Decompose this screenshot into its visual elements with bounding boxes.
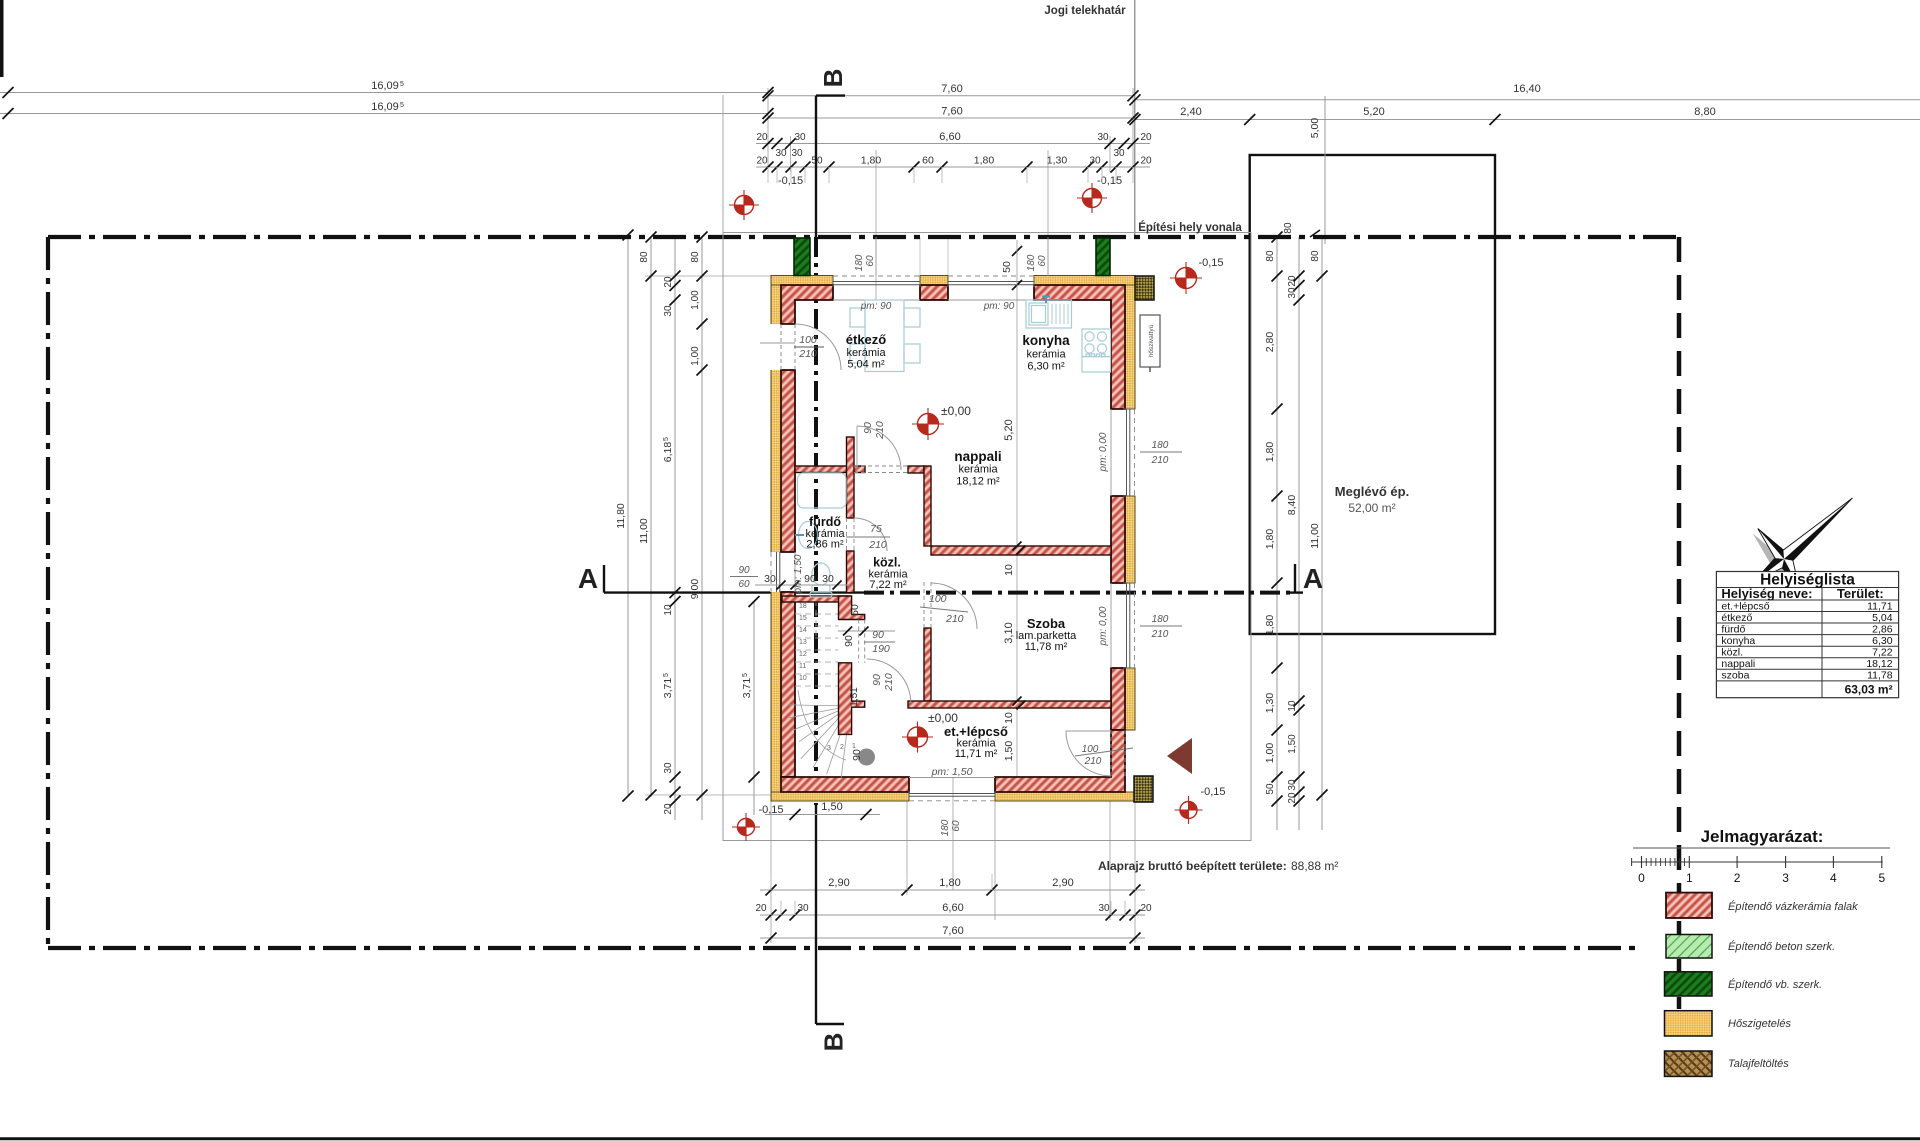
svg-text:3,71: 3,71 [741,678,753,699]
svg-text:2,40: 2,40 [1180,106,1201,118]
svg-text:180: 180 [1152,614,1169,625]
svg-text:100: 100 [799,334,817,346]
svg-text:50: 50 [849,604,861,616]
svg-text:30: 30 [791,148,803,159]
svg-text:90: 90 [804,573,816,585]
svg-text:88,88 m²: 88,88 m² [1291,859,1338,873]
svg-text:5: 5 [400,102,404,109]
svg-text:5: 5 [1878,871,1885,885]
svg-text:B: B [818,69,848,88]
svg-text:1,51: 1,51 [849,687,860,707]
svg-text:8,40: 8,40 [1286,495,1298,516]
svg-text:30: 30 [797,903,809,914]
svg-text:5,04: 5,04 [1872,612,1893,624]
svg-text:et.+lépcső: et.+lépcső [1721,600,1769,612]
svg-text:Helyiség neve:: Helyiség neve: [1721,586,1812,601]
svg-text:10: 10 [799,675,807,682]
svg-text:30: 30 [663,762,674,774]
svg-text:fürdő: fürdő [1721,623,1745,635]
svg-text:30: 30 [1287,779,1298,791]
svg-text:1,30: 1,30 [1047,155,1068,167]
svg-text:90: 90 [872,629,884,641]
svg-text:30: 30 [794,132,806,143]
svg-text:pm: 0,00: pm: 0,00 [1098,432,1109,472]
svg-text:80: 80 [1283,222,1294,234]
svg-text:6,30: 6,30 [1872,635,1893,647]
svg-text:0: 0 [1638,871,1645,885]
svg-text:hőszivattyú: hőszivattyú [1148,324,1155,357]
svg-text:1,80: 1,80 [939,877,960,889]
svg-text:90: 90 [843,635,855,647]
svg-text:1,30: 1,30 [1264,693,1276,714]
svg-text:Jelmagyarázat:: Jelmagyarázat: [1701,827,1824,846]
svg-text:5,00: 5,00 [1309,118,1321,139]
svg-text:20: 20 [663,276,674,288]
svg-text:18,12 m²: 18,12 m² [956,476,1000,488]
svg-text:6,60: 6,60 [939,131,960,143]
svg-text:3,10: 3,10 [1003,622,1015,643]
svg-text:1,50: 1,50 [1003,741,1015,762]
svg-text:90: 90 [862,422,874,434]
svg-text:10: 10 [1003,564,1015,576]
svg-text:9,00: 9,00 [689,579,701,600]
svg-text:1,80: 1,80 [1264,442,1276,463]
svg-text:20: 20 [663,803,674,815]
svg-text:20: 20 [1140,156,1152,167]
svg-text:±0,00: ±0,00 [941,404,971,418]
svg-text:80: 80 [1310,250,1321,262]
svg-text:nappali: nappali [1721,658,1755,670]
svg-text:180: 180 [1026,254,1037,271]
svg-text:11,71 m²: 11,71 m² [955,748,998,760]
svg-text:±0,00: ±0,00 [928,711,958,725]
svg-text:30: 30 [1089,156,1101,167]
svg-text:210: 210 [874,421,886,440]
svg-text:75: 75 [870,523,882,535]
svg-text:1,80: 1,80 [1264,529,1276,550]
svg-text:210: 210 [883,673,895,692]
svg-text:60: 60 [865,255,876,267]
svg-text:Talajfeltöltés: Talajfeltöltés [1728,1058,1789,1070]
svg-text:1: 1 [852,743,856,750]
svg-text:Építendő beton szerk.: Építendő beton szerk. [1728,940,1835,953]
svg-text:6,18: 6,18 [662,442,674,463]
svg-text:pm: 0,00: pm: 0,00 [1098,606,1109,646]
svg-text:13: 13 [799,639,807,646]
svg-text:20: 20 [1140,903,1152,914]
svg-text:60: 60 [922,155,934,167]
svg-text:11,00: 11,00 [638,518,650,544]
svg-text:étkező: étkező [1721,612,1752,624]
svg-text:2,86 m²: 2,86 m² [806,539,844,551]
svg-text:30: 30 [663,305,674,317]
svg-text:12: 12 [799,651,807,658]
svg-text:6,30 m²: 6,30 m² [1027,361,1065,373]
svg-text:2: 2 [1734,871,1741,885]
svg-text:pm: 1,50: pm: 1,50 [931,766,973,778]
svg-text:60: 60 [951,820,962,832]
svg-text:63,03 m²: 63,03 m² [1845,683,1893,697]
svg-text:210: 210 [1084,756,1102,767]
svg-text:11,71: 11,71 [1867,600,1893,612]
svg-text:190: 190 [872,643,890,655]
svg-text:1,80: 1,80 [861,155,882,167]
svg-text:20: 20 [1287,275,1298,287]
svg-text:210: 210 [798,348,817,360]
svg-text:7,60: 7,60 [942,925,963,937]
svg-text:2,86: 2,86 [1872,623,1893,635]
svg-text:180: 180 [940,819,951,836]
svg-text:pm: 90: pm: 90 [860,301,892,312]
svg-text:180: 180 [854,254,865,271]
svg-text:3,71: 3,71 [662,678,674,699]
svg-text:18,12: 18,12 [1866,658,1892,670]
svg-text:2: 2 [840,744,844,751]
svg-text:30: 30 [1113,148,1125,159]
svg-text:1,50: 1,50 [821,801,842,813]
svg-text:180: 180 [1152,440,1169,451]
svg-text:8,80: 8,80 [1694,106,1715,118]
svg-text:5: 5 [663,437,670,441]
svg-text:100: 100 [929,593,947,605]
svg-text:Építési hely vonala: Építési hely vonala [1138,221,1242,234]
svg-text:20: 20 [755,903,767,914]
svg-text:30: 30 [1097,132,1109,143]
svg-text:3: 3 [1782,871,1789,885]
svg-text:90: 90 [851,749,863,761]
svg-text:14: 14 [799,627,807,634]
svg-text:A: A [578,563,598,594]
svg-text:3: 3 [827,745,831,752]
svg-text:közl.: közl. [873,556,901,570]
svg-text:30: 30 [1287,287,1298,299]
svg-text:90: 90 [738,565,750,576]
svg-text:Meglévő ép.: Meglévő ép. [1335,484,1409,499]
svg-text:5: 5 [400,81,404,88]
svg-text:11,78 m²: 11,78 m² [1025,641,1068,653]
svg-text:étkező: étkező [846,332,887,347]
svg-text:A: A [1303,563,1323,594]
svg-text:20: 20 [1140,132,1152,143]
svg-text:kerámia: kerámia [958,464,998,476]
svg-text:80: 80 [1265,250,1276,262]
svg-text:11,00: 11,00 [1309,523,1321,549]
svg-text:kerámia: kerámia [846,347,886,359]
svg-text:-0,15: -0,15 [1198,257,1223,269]
svg-text:4: 4 [1830,871,1837,885]
svg-text:B: B [819,1033,849,1052]
svg-text:pm: 90: pm: 90 [983,301,1015,312]
svg-text:50: 50 [811,156,823,167]
svg-text:80: 80 [639,251,650,263]
svg-text:11,80: 11,80 [615,503,627,529]
svg-text:210: 210 [945,613,964,625]
svg-text:210: 210 [1151,629,1169,640]
svg-text:konyha: konyha [1022,333,1070,348]
svg-text:-0,15: -0,15 [1200,786,1225,798]
svg-text:-0,15: -0,15 [1097,175,1122,187]
svg-text:1: 1 [1686,871,1693,885]
svg-text:20: 20 [756,156,768,167]
svg-text:1,50: 1,50 [1287,734,1298,754]
svg-text:5: 5 [663,673,670,677]
svg-text:20: 20 [1287,792,1298,804]
svg-text:5,04 m²: 5,04 m² [847,359,885,371]
svg-text:30: 30 [764,573,776,585]
svg-text:1,00: 1,00 [690,290,701,310]
svg-text:11,78: 11,78 [1867,670,1893,682]
svg-text:-0,15: -0,15 [778,175,803,187]
svg-text:5,20: 5,20 [1363,106,1384,118]
svg-text:50: 50 [1265,783,1276,795]
svg-text:konyha: konyha [1721,635,1755,647]
svg-text:nappali: nappali [954,449,1001,464]
svg-text:20: 20 [756,132,768,143]
svg-text:7,22: 7,22 [1872,647,1893,659]
svg-text:50: 50 [1001,261,1013,273]
svg-text:2,90: 2,90 [1052,877,1073,889]
svg-text:52,00 m²: 52,00 m² [1348,501,1395,515]
svg-text:kerámia: kerámia [1026,349,1066,361]
svg-text:18: 18 [799,603,807,610]
svg-text:1,00: 1,00 [1264,743,1276,764]
svg-text:80: 80 [690,251,701,263]
svg-text:1,80: 1,80 [974,155,995,167]
svg-text:30: 30 [775,148,787,159]
svg-text:Szoba: Szoba [1027,616,1066,631]
svg-text:210: 210 [1151,455,1169,466]
svg-text:Jogi telekhatár: Jogi telekhatár [1044,5,1126,17]
svg-text:szoba: szoba [1721,670,1749,682]
svg-text:Építendő vb. szerk.: Építendő vb. szerk. [1728,978,1822,991]
svg-text:5: 5 [742,673,749,677]
svg-text:Alaprajz bruttó beépített terü: Alaprajz bruttó beépített területe: [1098,859,1287,873]
svg-text:30: 30 [1098,903,1110,914]
svg-text:fürdő: fürdő [809,515,841,529]
svg-text:6,60: 6,60 [942,902,963,914]
svg-text:16,09: 16,09 [371,80,399,92]
svg-text:2,80: 2,80 [1264,332,1276,353]
svg-text:210: 210 [868,539,887,551]
svg-text:16,40: 16,40 [1513,83,1541,95]
svg-text:10: 10 [663,604,674,616]
svg-text:1,00: 1,00 [690,346,701,366]
svg-text:Hőszigetelés: Hőszigetelés [1728,1018,1791,1030]
svg-text:60: 60 [1037,255,1048,267]
svg-text:16,09: 16,09 [371,101,399,113]
svg-text:30: 30 [822,573,834,585]
svg-text:5,20: 5,20 [1003,419,1015,440]
svg-text:7,22 m²: 7,22 m² [869,579,907,591]
svg-text:pm: 1,50: pm: 1,50 [793,554,804,594]
svg-text:Terület:: Terület: [1837,586,1884,601]
svg-text:2,90: 2,90 [828,877,849,889]
svg-text:60: 60 [738,579,750,590]
svg-text:Építendő vázkerámia falak: Építendő vázkerámia falak [1728,900,1858,913]
svg-text:10: 10 [1003,712,1015,724]
svg-text:7,60: 7,60 [941,83,962,95]
svg-text:11: 11 [799,663,806,670]
svg-text:7,60: 7,60 [941,106,962,118]
svg-text:10: 10 [1287,700,1298,712]
svg-text:90: 90 [871,674,883,686]
svg-text:1,80: 1,80 [1264,615,1276,636]
svg-text:közl.: közl. [1721,647,1743,659]
svg-text:15: 15 [799,615,807,622]
